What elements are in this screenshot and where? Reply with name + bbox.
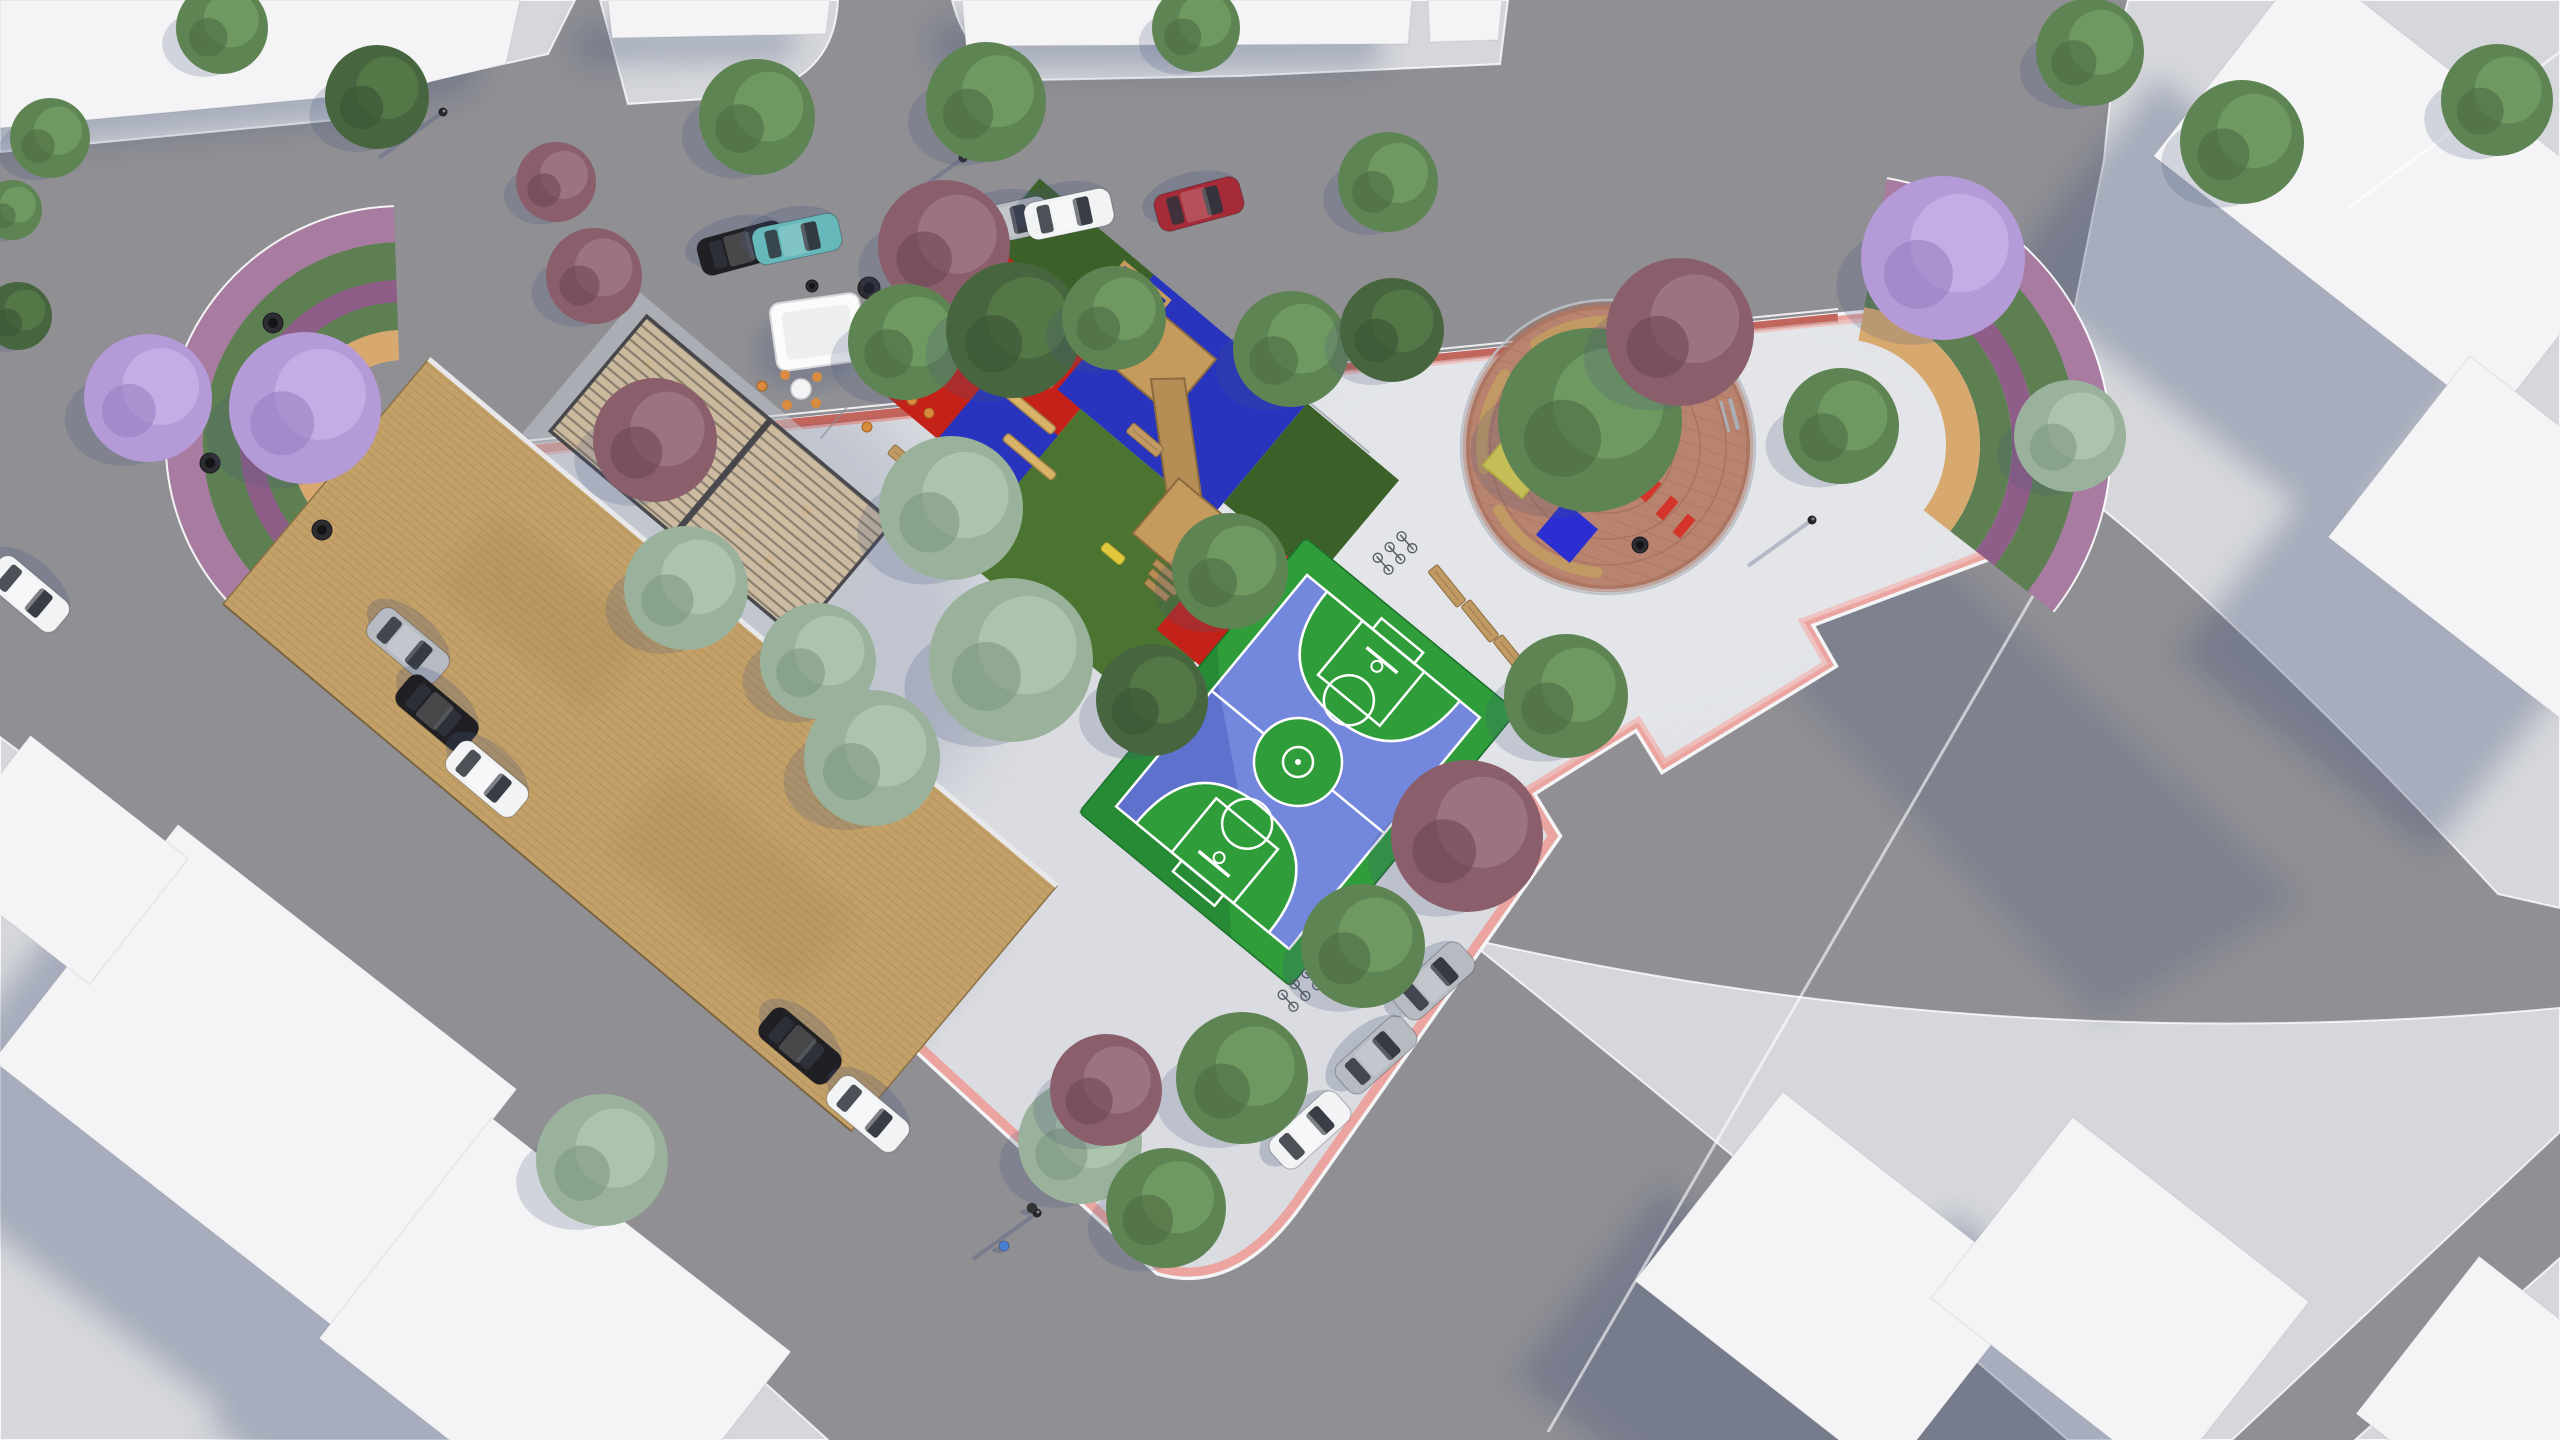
tree-canopy-shade	[1164, 18, 1201, 55]
tree-canopy-shade	[2051, 40, 2096, 85]
tree-canopy-shade	[1524, 400, 1601, 477]
tree-canopy-shade	[1799, 413, 1848, 462]
tree-canopy-shade	[1352, 171, 1394, 213]
tree-canopy-shade	[1077, 307, 1121, 351]
trash-bin	[806, 280, 818, 292]
lamp-highlight	[1037, 1211, 1040, 1214]
bin-lid	[317, 525, 327, 535]
tree-canopy-shade	[21, 129, 55, 163]
tree-canopy-shade	[340, 86, 384, 130]
tree-canopy-shade	[250, 391, 314, 455]
tree-canopy-shade	[823, 743, 880, 800]
tree-canopy-shade	[1112, 688, 1159, 735]
tree-canopy-shade	[1066, 1078, 1113, 1125]
tree-canopy-shade	[2030, 424, 2077, 471]
stool	[862, 422, 872, 432]
lamp-highlight	[1812, 518, 1815, 521]
tree-canopy-shade	[1249, 336, 1298, 385]
tree-canopy-shade	[1627, 316, 1689, 378]
tree-canopy-shade	[2197, 128, 2249, 180]
trash-bin	[1632, 537, 1648, 553]
site-plan-svg	[0, 0, 2560, 1440]
bin-lid	[268, 318, 278, 328]
trash-bin	[263, 313, 283, 333]
tree-canopy-shade	[2457, 88, 2504, 135]
tree-canopy-shade	[189, 18, 228, 57]
tree-canopy-shade	[952, 642, 1021, 711]
tree-canopy-shade	[965, 315, 1022, 372]
tree-canopy-shade	[1355, 319, 1399, 363]
bin-lid	[205, 458, 215, 468]
tree-canopy-shade	[896, 231, 951, 286]
stool	[757, 381, 767, 391]
tree-canopy-shade	[1521, 682, 1573, 734]
tree-canopy-shade	[1318, 932, 1370, 984]
building-mass	[608, 0, 830, 38]
tree-canopy-shade	[610, 426, 662, 478]
tree-canopy-shade	[899, 492, 959, 552]
lamp-highlight	[443, 110, 446, 113]
tree-canopy-shade	[1123, 1195, 1173, 1245]
bin-lid	[809, 283, 815, 289]
building-mass	[1428, 0, 1502, 42]
person-body	[999, 1241, 1009, 1251]
tree-canopy-shade	[1194, 1063, 1249, 1118]
round-table	[791, 379, 811, 399]
tree-canopy-shade	[864, 329, 913, 378]
tree-canopy-shade	[943, 89, 993, 139]
tree-canopy-shade	[1884, 240, 1953, 309]
bin-lid	[1636, 541, 1644, 549]
tree-canopy-shade	[641, 574, 693, 626]
tree-canopy-shade	[554, 1145, 609, 1200]
tree-canopy-shade	[1188, 558, 1237, 607]
tree-canopy-shade	[715, 104, 764, 153]
stool	[924, 408, 934, 418]
trash-bin	[312, 520, 332, 540]
tree-canopy-shade	[1412, 819, 1476, 883]
aerial-site-plan	[0, 0, 2560, 1440]
tree-canopy-shade	[527, 173, 561, 207]
tree-canopy-shade	[559, 265, 599, 305]
tree-canopy-shade	[776, 648, 825, 697]
tree-canopy-shade	[102, 384, 156, 438]
